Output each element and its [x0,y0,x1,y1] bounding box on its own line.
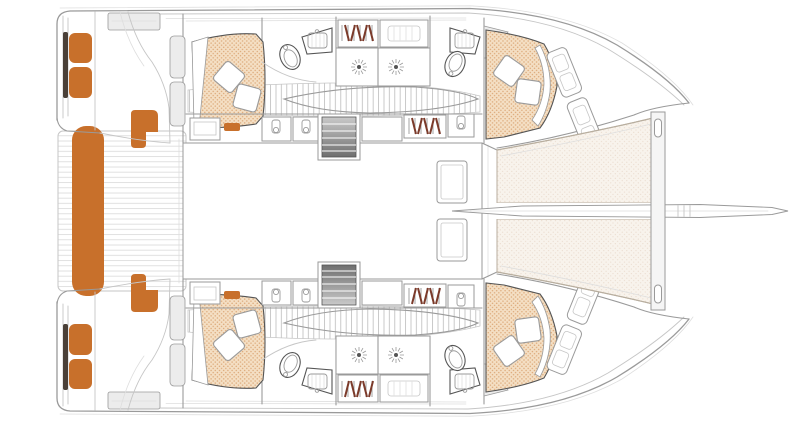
catamaran-floor-plan-page [0,0,800,422]
aft-bathroom [262,28,332,82]
aft-cabin [170,34,265,131]
side-shelf [170,36,185,78]
helm-seat-cushion [69,33,92,63]
davit-panel [108,13,160,30]
storage-locker [293,117,320,141]
foredeck-door [437,161,467,203]
crossbeam-fitting [655,119,662,137]
berth-step [224,123,240,131]
transom-bench-cushion [72,126,104,296]
storage-locker [190,118,220,140]
helm-seat-frame [63,32,68,98]
pillow-icon [514,78,541,105]
crossbeam-fitting [655,285,662,303]
companionway-stairs [318,114,360,160]
forward-cabin [484,26,557,139]
storage-locker [448,114,474,137]
catamaran-floor-plan [0,0,800,422]
helm-seat-cushion [69,67,92,98]
toilet-icon [276,41,304,73]
shower-compartments [336,48,430,86]
aft-deck [58,126,186,296]
forward-bathroom [441,28,480,80]
storage-locker [362,117,402,141]
vanity-cabinet [380,20,428,47]
storage-locker [262,117,291,141]
forward-crossbeam [651,112,665,310]
toe-rail-line [166,18,466,19]
washbasin-icon [450,28,480,54]
washbasin-icon [302,28,332,54]
side-shelf [170,82,185,126]
